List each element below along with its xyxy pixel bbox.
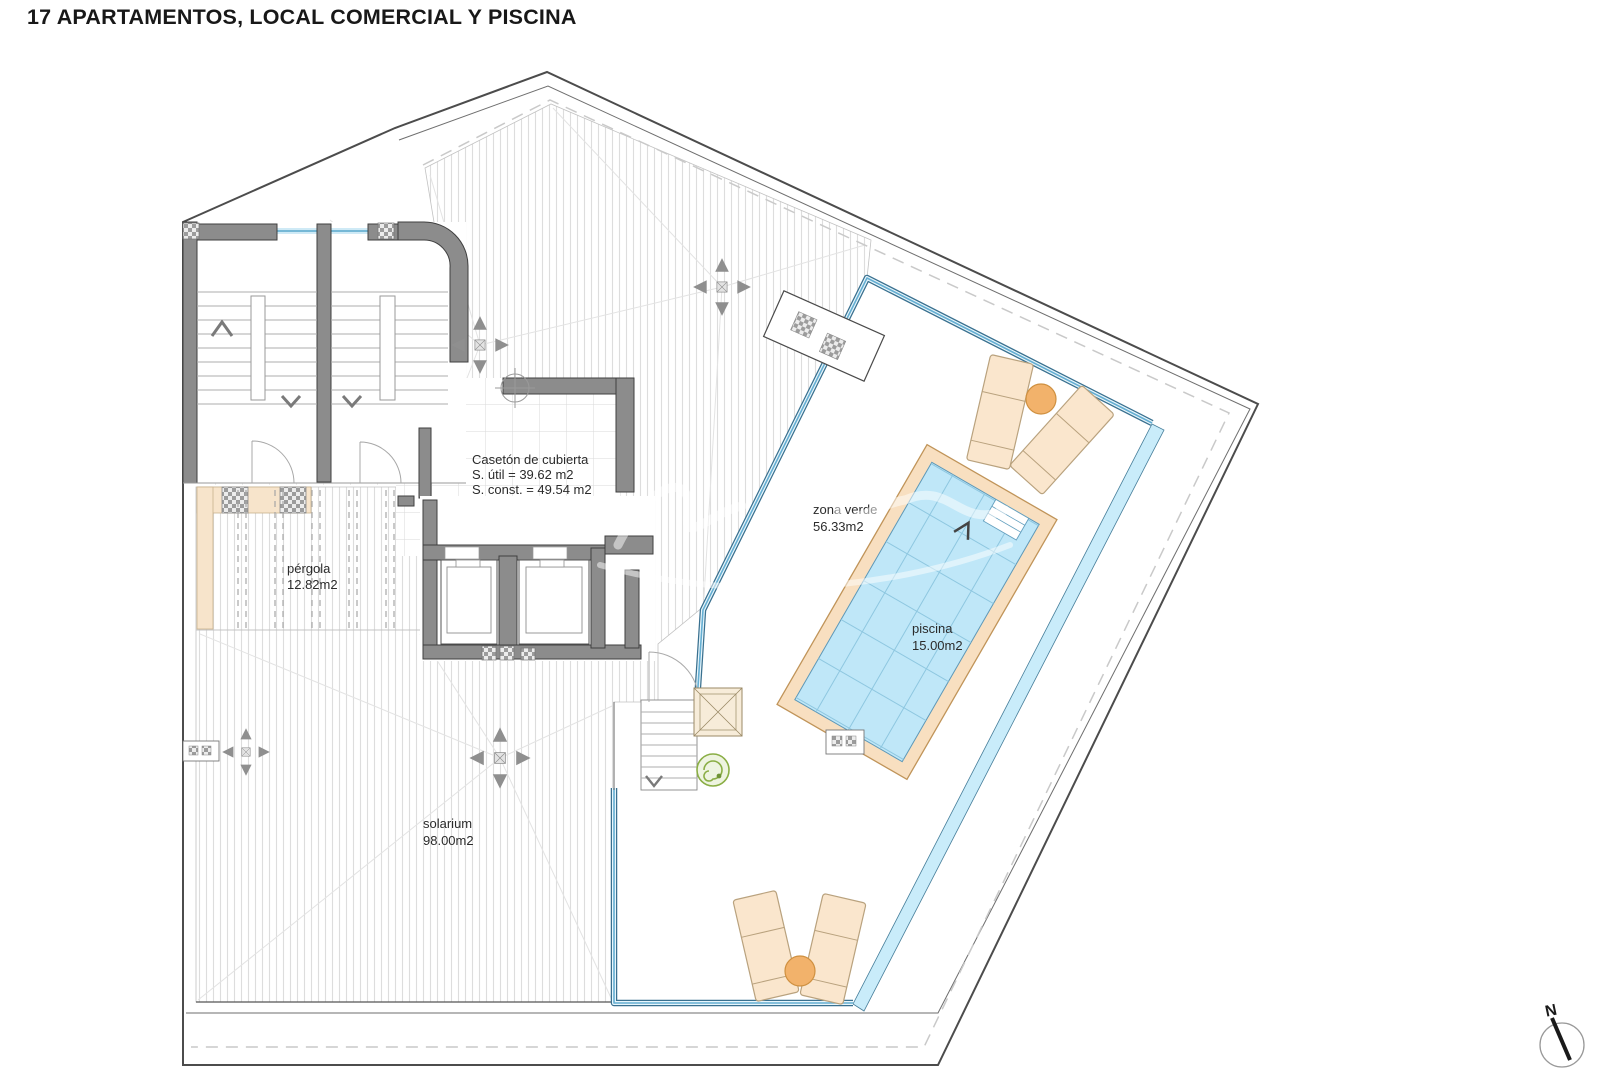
column-marker bbox=[500, 646, 514, 660]
pergola-label: pérgola bbox=[287, 561, 331, 576]
column-marker bbox=[378, 223, 394, 239]
caseton-const-area: S. const. = 49.54 m2 bbox=[472, 482, 592, 497]
pergola-column bbox=[222, 487, 248, 513]
floorplan-drawing: 17 APARTAMENTOS, LOCAL COMERCIAL Y PISCI… bbox=[0, 0, 1620, 1080]
solarium-label: solarium bbox=[423, 816, 472, 831]
outdoor-shower-tray bbox=[694, 688, 742, 736]
pergola-column bbox=[280, 487, 306, 513]
piscina-area-value: 15.00m2 bbox=[912, 638, 963, 653]
floorplan-page: 17 APARTAMENTOS, LOCAL COMERCIAL Y PISCI… bbox=[0, 0, 1620, 1080]
column-marker bbox=[482, 646, 496, 660]
caseton-label: Casetón de cubierta bbox=[472, 452, 589, 467]
solarium-area-value: 98.00m2 bbox=[423, 833, 474, 848]
elevator-block bbox=[398, 496, 655, 661]
side-table bbox=[1026, 384, 1056, 414]
skimmer-box bbox=[826, 730, 864, 754]
piscina-label: piscina bbox=[912, 621, 953, 636]
page-title: 17 APARTAMENTOS, LOCAL COMERCIAL Y PISCI… bbox=[27, 5, 577, 29]
drain-box bbox=[183, 741, 219, 761]
side-table bbox=[785, 956, 815, 986]
column-marker bbox=[183, 223, 199, 239]
potted-plant-icon bbox=[697, 754, 729, 786]
caseton-util-area: S. útil = 39.62 m2 bbox=[472, 467, 574, 482]
column-marker bbox=[521, 648, 535, 660]
pergola-area-value: 12.82m2 bbox=[287, 577, 338, 592]
